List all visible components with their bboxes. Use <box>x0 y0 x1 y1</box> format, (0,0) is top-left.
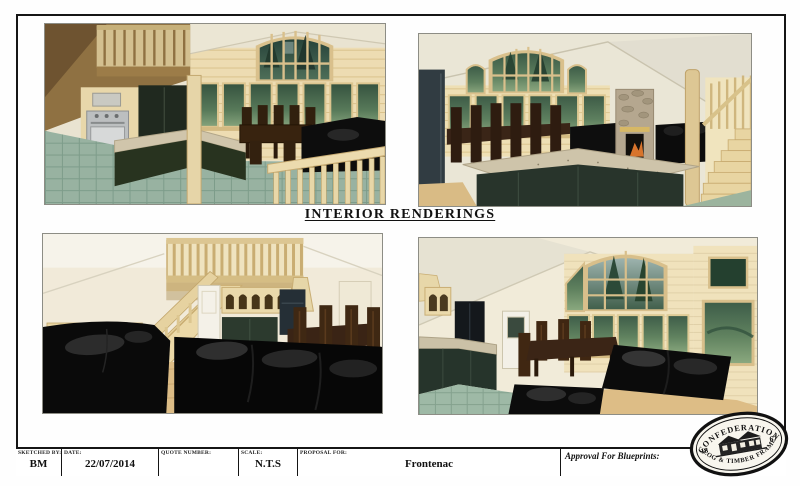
field-sketched-by: SKETCHED BY: BM <box>16 449 61 476</box>
field-quote-number: QUOTE NUMBER: <box>158 449 238 476</box>
field-date: DATE: 22/07/2014 <box>61 449 158 476</box>
title-block: SKETCHED BY: BM DATE: 22/07/2014 QUOTE N… <box>16 447 786 476</box>
date-value: 22/07/2014 <box>62 458 158 470</box>
rendering-3-art <box>43 234 382 413</box>
living-room-staircase-rendering <box>42 233 383 414</box>
proposal-for-value: Frontenac <box>298 458 560 470</box>
rendering-4-art <box>419 238 757 414</box>
scale-label: SCALE: <box>241 450 262 456</box>
quote-number-label: QUOTE NUMBER: <box>161 450 211 456</box>
great-room-window-wall-rendering <box>418 237 758 415</box>
blueprint-sheet: INTERIOR RENDERINGS SKETCHED BY: BM DATE… <box>0 0 800 486</box>
sketched-by-value: BM <box>16 458 61 470</box>
logo-year-right: 67 <box>769 433 778 443</box>
field-proposal-for: PROPOSAL FOR: Frontenac <box>297 449 560 476</box>
logo-year-left: 18 <box>700 445 709 455</box>
proposal-for-label: PROPOSAL FOR: <box>300 450 347 456</box>
scale-value: N.T.S <box>239 458 297 470</box>
field-scale: SCALE: N.T.S <box>238 449 297 476</box>
dining-island-fireplace-rendering <box>418 33 752 207</box>
approval-label: Approval For Blueprints: <box>565 451 660 461</box>
page-title: INTERIOR RENDERINGS <box>0 207 800 223</box>
sketched-by-label: SKETCHED BY: <box>18 450 61 456</box>
rendering-2-art <box>419 34 751 206</box>
kitchen-loft-dining-rendering <box>44 23 386 205</box>
date-label: DATE: <box>64 450 82 456</box>
rendering-1-art <box>45 24 385 204</box>
